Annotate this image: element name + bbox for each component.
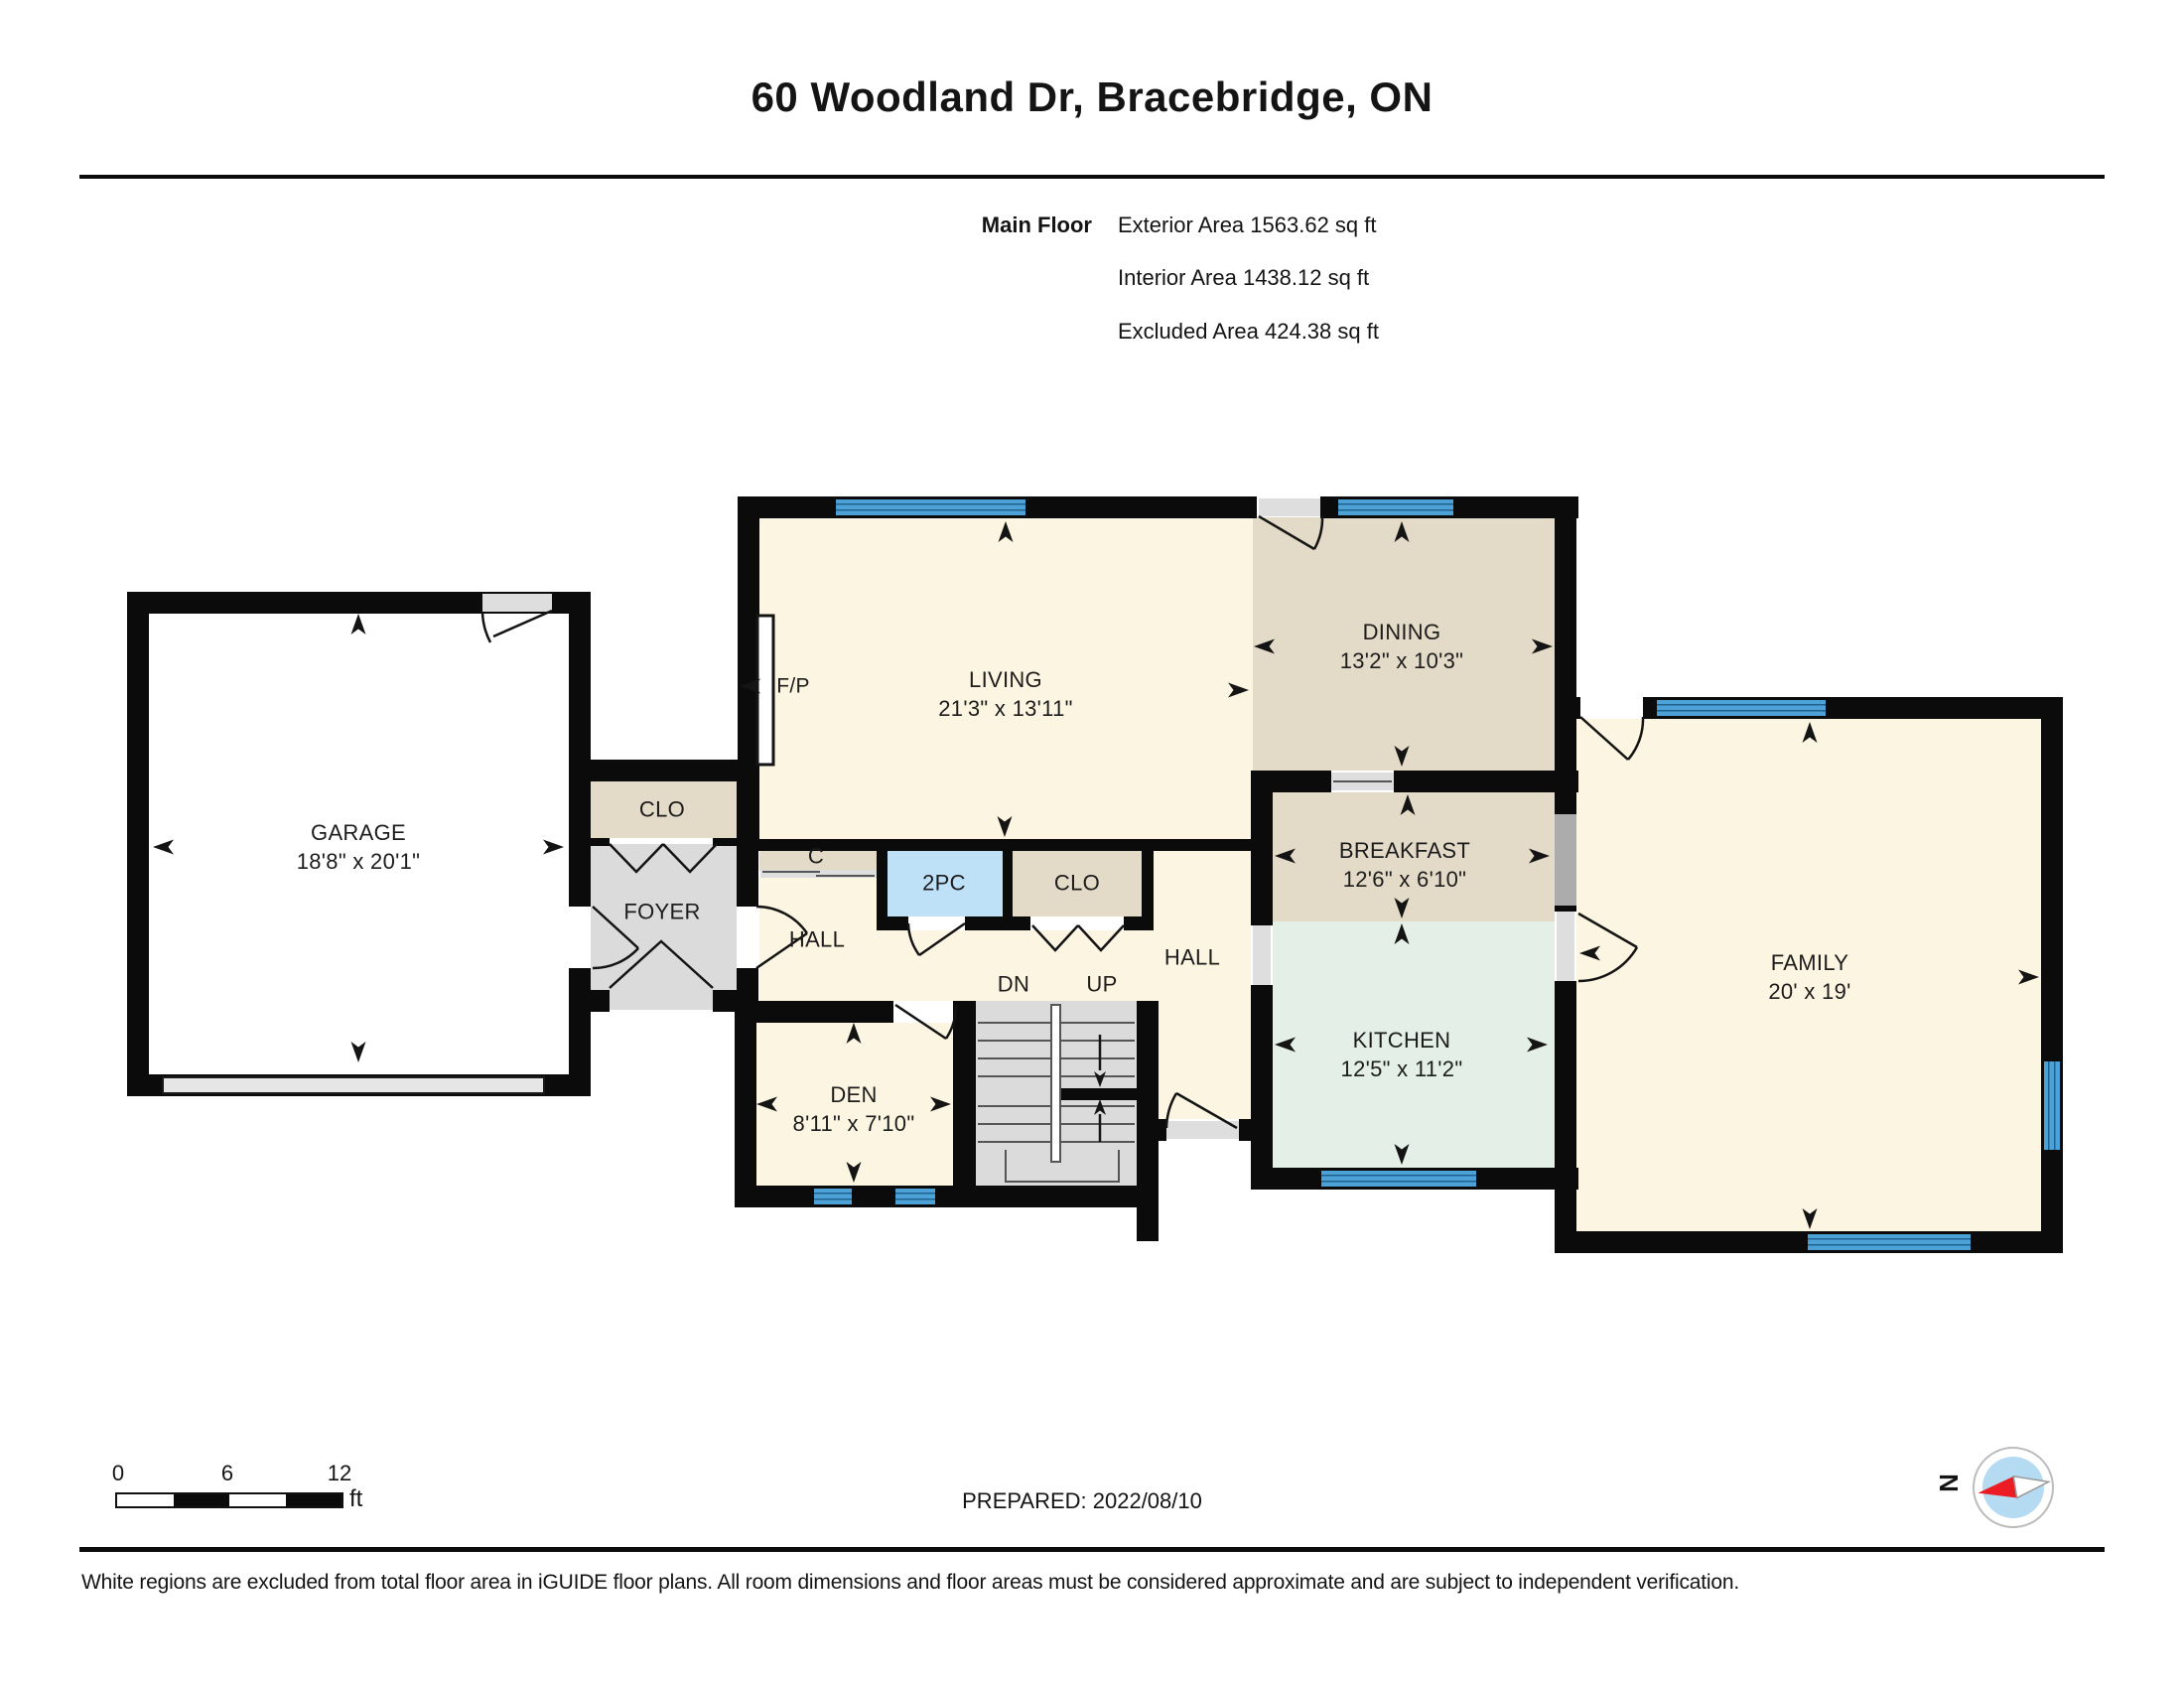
room-dims: 8'11" x 7'10" <box>793 1109 915 1138</box>
window <box>814 1186 852 1207</box>
scale-bar-segment <box>117 1494 174 1506</box>
wall-segment <box>1137 1001 1159 1241</box>
stairs-down-label: DN <box>998 970 1029 999</box>
wall-segment <box>738 1001 893 1023</box>
wall-segment <box>1320 496 1338 518</box>
wall-segment <box>569 968 591 1096</box>
hall-exterior-door-threshold <box>1166 1121 1239 1139</box>
wall-segment <box>1025 496 1257 518</box>
prepared-date: PREPARED: 2022/08/10 <box>962 1488 1202 1514</box>
room-dims: 12'6" x 6'10" <box>1339 865 1470 894</box>
window <box>1808 1231 1971 1253</box>
scale-bar-segment <box>286 1494 342 1506</box>
interior-area: Interior Area 1438.12 sq ft <box>1118 265 1369 291</box>
c-closet-slider <box>760 870 877 878</box>
wall-segment <box>735 1001 756 1207</box>
room-label-living: LIVING 21'3" x 13'11" <box>938 665 1072 723</box>
stairs-floor <box>976 1001 1137 1186</box>
wall-segment <box>1394 771 1578 792</box>
dining-door-threshold <box>1259 498 1320 516</box>
wall-segment <box>2041 697 2063 1061</box>
wall-segment <box>965 916 1030 930</box>
room-name: DEN <box>793 1080 915 1109</box>
room-label-closet-entry: CLO <box>639 795 685 824</box>
foyer-threshold <box>610 990 713 1010</box>
garage-overhead-door <box>162 1076 545 1094</box>
wall-segment <box>1555 1231 1808 1253</box>
room-label-hall-left: HALL <box>789 925 845 954</box>
wall-segment <box>1251 985 1273 1190</box>
wall-segment <box>713 838 737 846</box>
wall-segment <box>569 592 591 907</box>
footer-divider <box>79 1547 2105 1552</box>
window <box>836 496 1025 518</box>
room-dims: 18'8" x 20'1" <box>297 847 421 876</box>
kitchen-family-door-threshold <box>1557 912 1574 981</box>
room-label-closet-hall: CLO <box>1054 869 1100 898</box>
wall-segment <box>738 496 759 851</box>
room-label-dining: DINING 13'2" x 10'3" <box>1340 618 1464 675</box>
room-dims: 20' x 19' <box>1768 977 1850 1006</box>
scale-bar <box>115 1492 343 1508</box>
room-dims: 12'5" x 11'2" <box>1341 1055 1463 1083</box>
room-name: GARAGE <box>297 818 421 847</box>
room-name: FAMILY <box>1768 948 1850 977</box>
dining-breakfast-slider <box>1331 773 1394 790</box>
room-label-hall-right: HALL <box>1164 943 1220 972</box>
appliance-fridge <box>1555 814 1576 906</box>
wall-segment <box>2041 1150 2063 1253</box>
compass <box>1972 1446 2055 1529</box>
compass-icon <box>1972 1446 2055 1529</box>
page-title: 60 Woodland Dr, Bracebridge, ON <box>0 73 2184 121</box>
compass-north-label: N <box>1934 1474 1965 1492</box>
garage-door-threshold <box>482 594 552 612</box>
disclaimer-text: White regions are excluded from total fl… <box>81 1571 1739 1595</box>
room-label-kitchen: KITCHEN 12'5" x 11'2" <box>1341 1026 1463 1083</box>
wall-segment <box>1555 981 1576 1253</box>
wall-segment <box>1142 839 1154 930</box>
room-label-powder: 2PC <box>922 869 966 898</box>
wall-segment <box>887 916 908 930</box>
wall-segment <box>591 838 610 846</box>
room-dims: 13'2" x 10'3" <box>1340 646 1464 675</box>
wall-segment <box>569 760 758 781</box>
excluded-area: Excluded Area 424.38 sq ft <box>1118 319 1379 345</box>
wall-segment <box>1124 916 1142 930</box>
floor-label: Main Floor <box>0 212 1092 238</box>
wall-segment <box>877 839 887 930</box>
scale-unit-label: ft <box>349 1485 362 1513</box>
window <box>1657 697 1826 719</box>
wall-segment <box>1826 697 2063 719</box>
kitchen-hall-doorway <box>1253 925 1271 985</box>
scale-end-label: 12 <box>328 1461 351 1486</box>
wall-segment <box>1251 771 1273 925</box>
wall-segment <box>852 1186 895 1207</box>
wall-segment <box>935 1186 1159 1207</box>
fireplace-label: F/P <box>776 672 810 701</box>
room-label-family: FAMILY 20' x 19' <box>1768 948 1850 1006</box>
window <box>1338 496 1453 518</box>
exterior-area: Exterior Area 1563.62 sq ft <box>1118 212 1377 238</box>
stairs-up-label: UP <box>1086 970 1117 999</box>
room-name: BREAKFAST <box>1339 836 1470 865</box>
room-label-den: DEN 8'11" x 7'10" <box>793 1080 915 1138</box>
window <box>895 1186 935 1207</box>
window <box>1321 1168 1476 1190</box>
wall-segment <box>1643 697 1657 719</box>
room-name: KITCHEN <box>1341 1026 1463 1055</box>
floorplan-page: 60 Woodland Dr, Bracebridge, ON Main Flo… <box>0 0 2184 1688</box>
wall-segment <box>127 592 149 1096</box>
wall-segment <box>1239 1119 1251 1141</box>
room-dims: 21'3" x 13'11" <box>938 694 1072 723</box>
room-name: LIVING <box>938 665 1072 694</box>
room-label-closet-c: C <box>808 842 824 871</box>
room-name: DINING <box>1340 618 1464 646</box>
room-label-garage: GARAGE 18'8" x 20'1" <box>297 818 421 876</box>
wall-segment <box>1003 839 1013 930</box>
scale-bar-segment <box>174 1494 230 1506</box>
header-divider <box>79 175 2105 179</box>
window <box>2041 1061 2063 1150</box>
scale-start-label: 0 <box>112 1461 124 1486</box>
wall-segment <box>953 1001 976 1186</box>
scale-bar-segment <box>229 1494 286 1506</box>
scale-mid-label: 6 <box>221 1461 233 1486</box>
room-label-foyer: FOYER <box>623 898 700 926</box>
room-label-breakfast: BREAKFAST 12'6" x 6'10" <box>1339 836 1470 894</box>
